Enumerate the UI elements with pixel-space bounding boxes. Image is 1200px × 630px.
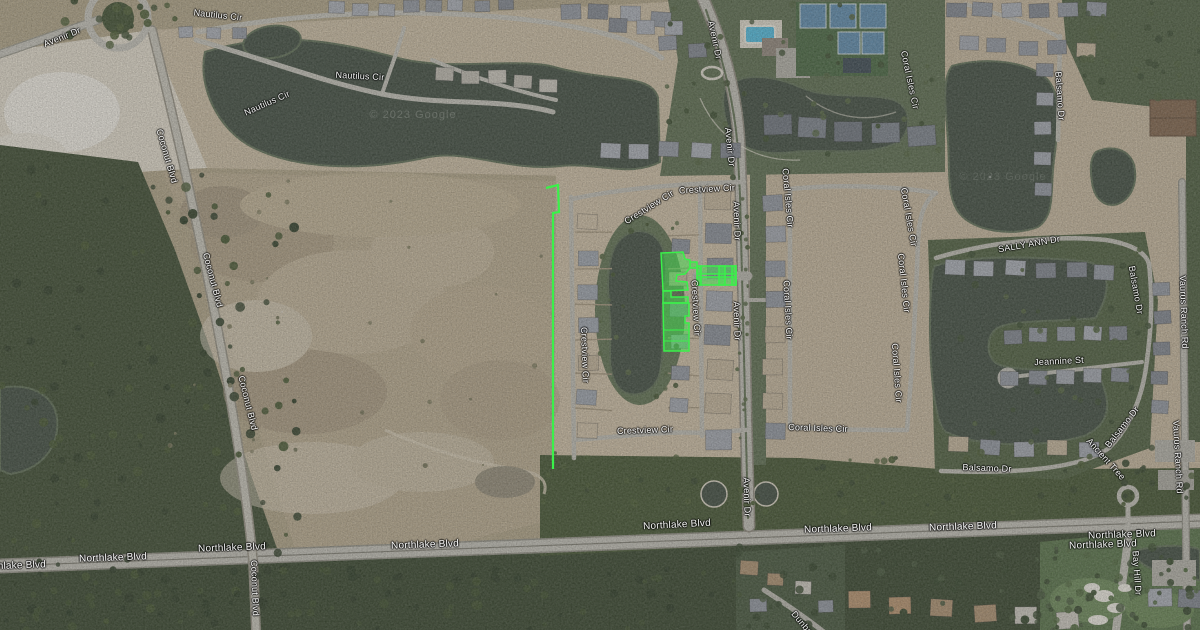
entrance-road-south-bar [697, 277, 736, 285]
entrance-road-north-bar [697, 266, 736, 274]
satellite-terrain [0, 0, 1200, 630]
satellite-map[interactable]: Avenir DrNautilus CirNautilus CirNautilu… [0, 0, 1200, 630]
entrance-road-mid-connector [719, 266, 725, 285]
parcel-road-link [690, 262, 697, 268]
entrance-road-west-connector [697, 266, 701, 285]
image-grain [0, 0, 1200, 630]
parcel-south [663, 303, 689, 351]
entrance-road-east-connector [732, 266, 736, 285]
